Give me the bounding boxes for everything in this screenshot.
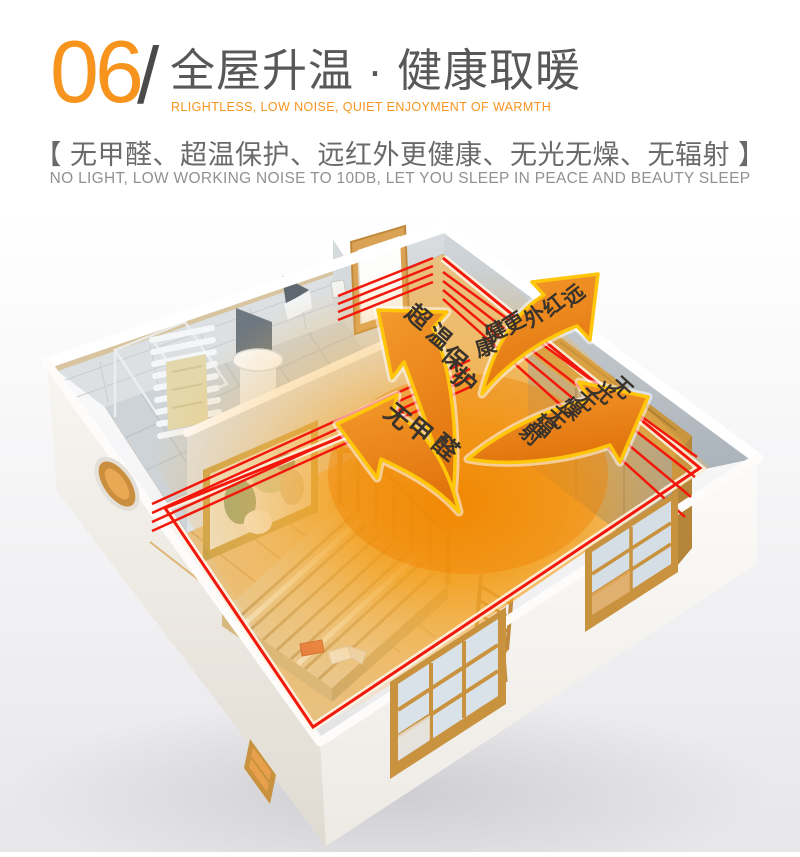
section-number: 06 <box>50 28 140 116</box>
divider-slash: / <box>137 36 159 116</box>
room-illustration: 超温保护 远红外更健康 无光无燥无辐射 无甲醛 <box>0 212 800 852</box>
header: 06 / 全屋升温 · 健康取暖 RLIGHTLESS, LOW NOISE, … <box>0 0 800 212</box>
page-subtitle-en: RLIGHTLESS, LOW NOISE, QUIET ENJOYMENT O… <box>171 100 551 114</box>
features-line-en: NO LIGHT, LOW WORKING NOISE TO 10DB, LET… <box>0 170 800 188</box>
features-line: 【 无甲醛、超温保护、远红外更健康、无光无燥、无辐射 】 <box>0 133 800 172</box>
page-title: 全屋升温 · 健康取暖 <box>170 46 581 96</box>
